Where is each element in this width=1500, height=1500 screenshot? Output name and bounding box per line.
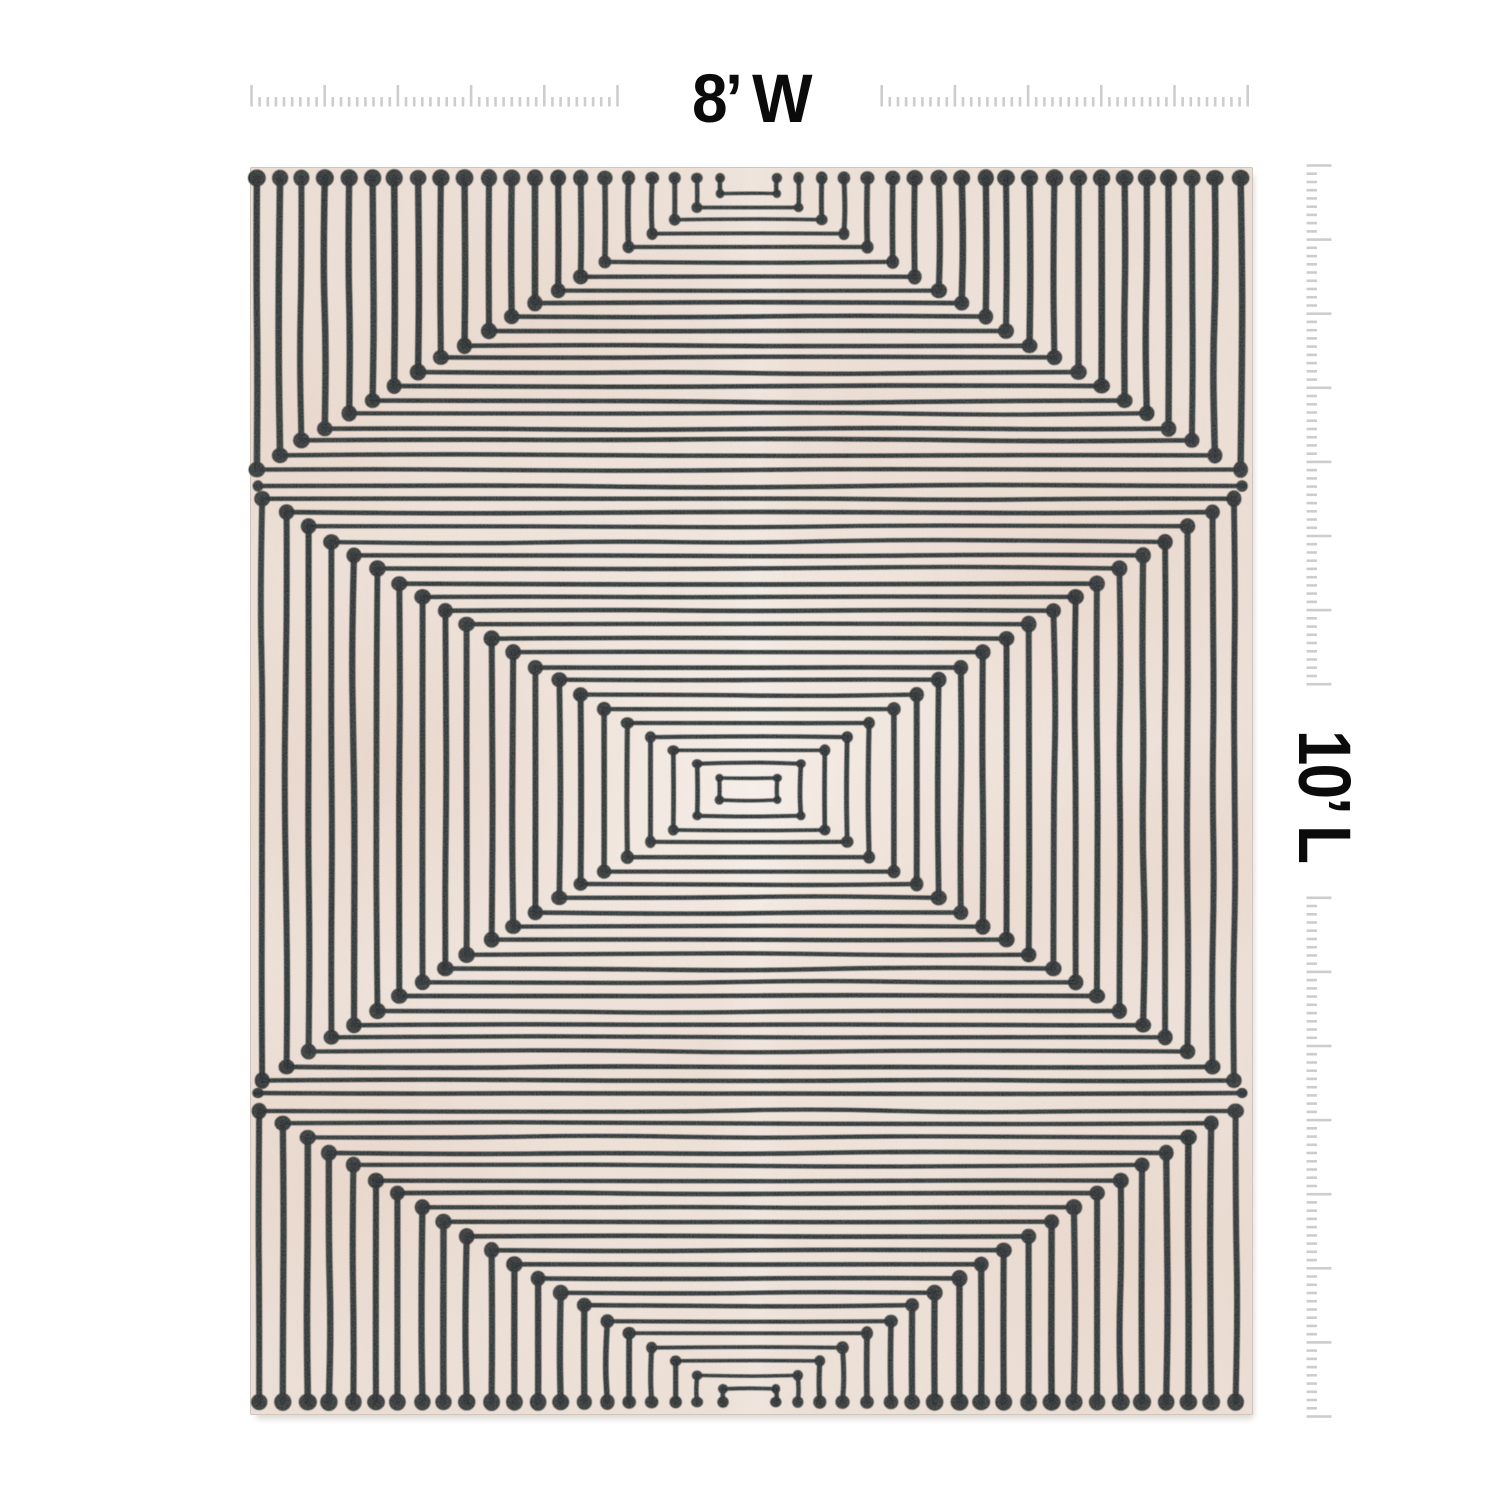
svg-text:8’ W: 8’ W	[692, 61, 813, 138]
svg-text:10’ L: 10’ L	[1283, 730, 1367, 863]
